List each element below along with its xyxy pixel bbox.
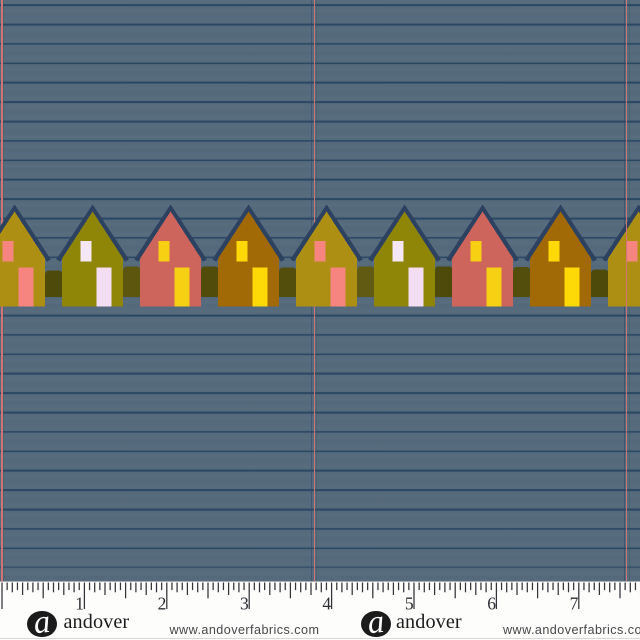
svg-text:3: 3 — [240, 594, 249, 614]
svg-text:6: 6 — [487, 594, 496, 614]
svg-text:2: 2 — [158, 594, 167, 614]
svg-text:7: 7 — [570, 594, 579, 614]
svg-text:4: 4 — [322, 594, 331, 614]
